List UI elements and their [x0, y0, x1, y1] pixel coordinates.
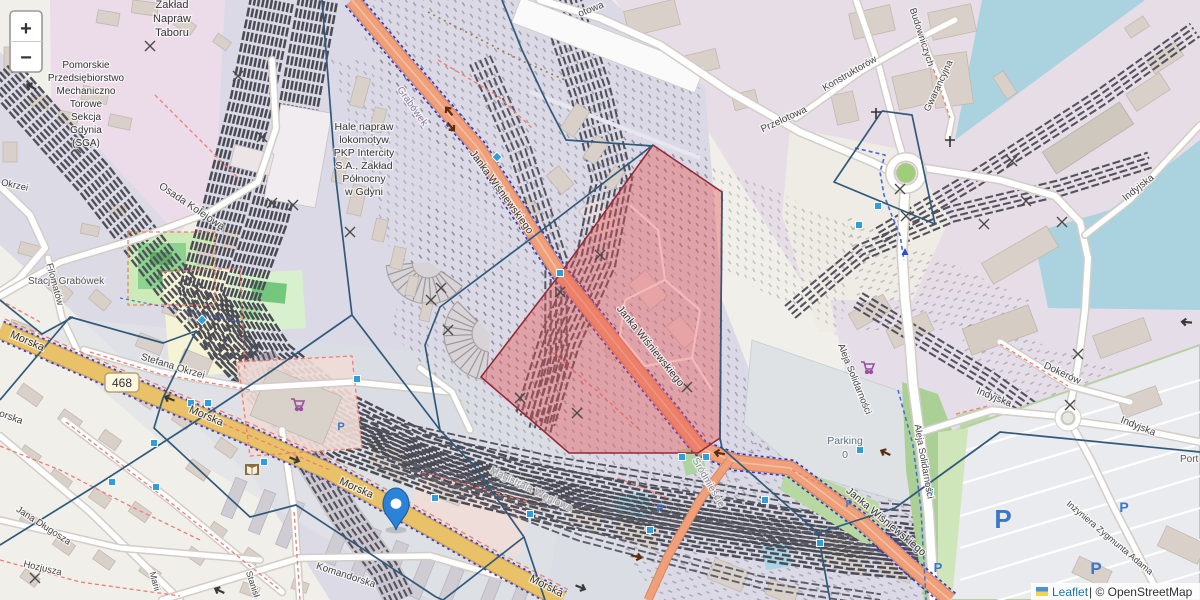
svg-text:Pomorskie: Pomorskie — [62, 60, 110, 71]
svg-text:468: 468 — [112, 376, 132, 390]
svg-text:P: P — [1119, 499, 1128, 515]
svg-text:Gdynia: Gdynia — [70, 125, 102, 136]
svg-text:Parking: Parking — [827, 435, 863, 447]
svg-text:P: P — [1090, 559, 1101, 578]
svg-text:Zakład: Zakład — [155, 0, 188, 11]
svg-text:−: − — [20, 47, 32, 69]
svg-text:Napraw: Napraw — [153, 13, 191, 25]
svg-text:P: P — [934, 560, 943, 575]
svg-text:(SGA): (SGA) — [72, 138, 100, 149]
svg-text:Północny: Północny — [342, 173, 386, 185]
svg-text:Leaflet: Leaflet — [1052, 585, 1089, 599]
svg-text:P: P — [337, 421, 344, 433]
svg-text:S.A., Zakład: S.A., Zakład — [335, 160, 392, 172]
svg-text:Przedsiębiorstwo: Przedsiębiorstwo — [48, 73, 125, 84]
svg-text:w Gdyni: w Gdyni — [344, 186, 383, 198]
svg-text:P: P — [656, 503, 663, 515]
svg-text:P: P — [994, 504, 1011, 534]
svg-text:+: + — [20, 18, 32, 40]
svg-text:Torowe: Torowe — [70, 99, 103, 110]
svg-text:Taboru: Taboru — [155, 27, 189, 39]
svg-text:Mechaniczno: Mechaniczno — [57, 86, 116, 97]
svg-text:PKP Intercity: PKP Intercity — [334, 147, 395, 159]
svg-text:Stacja Grabówek: Stacja Grabówek — [28, 276, 105, 287]
svg-text:Sekcja: Sekcja — [71, 112, 101, 123]
svg-text:0: 0 — [842, 449, 848, 461]
svg-text:| © OpenStreetMap: | © OpenStreetMap — [1089, 585, 1193, 599]
svg-text:Port: Port — [1180, 454, 1199, 465]
svg-text:lokomotyw: lokomotyw — [339, 134, 389, 146]
svg-text:Hale napraw: Hale napraw — [335, 121, 394, 133]
